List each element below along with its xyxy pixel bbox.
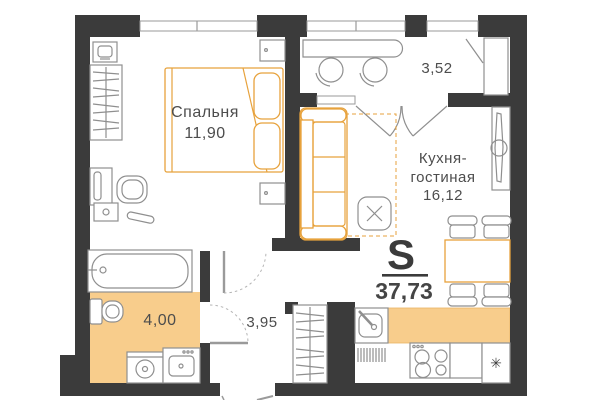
bedroom-window: [140, 21, 257, 31]
bathtub: [88, 250, 192, 292]
dining-chair: [482, 216, 511, 238]
dresser: [94, 203, 118, 221]
entry-door-leaf: [257, 396, 273, 400]
total-area-block: S 37,73: [375, 231, 433, 304]
total-area-value: 37,73: [375, 278, 433, 304]
coffee-table: [358, 197, 391, 230]
dining-chair: [448, 284, 477, 306]
desk-chair: [117, 176, 147, 203]
dining-chair: [482, 284, 511, 306]
bedroom-area: 11,90: [184, 125, 225, 142]
floorplan-canvas: ✳: [0, 0, 600, 400]
total-area-underline: [382, 274, 428, 277]
kitchen-sink: [355, 308, 388, 343]
snowflake-icon: ✳: [490, 355, 502, 371]
sofa: [300, 108, 347, 240]
kitchen-living-name-1: Кухня-: [419, 150, 467, 167]
balcony-french-doors: [356, 106, 447, 136]
balcony-cabinet-door: [466, 39, 483, 63]
dish-rack: [358, 348, 385, 362]
total-area-symbol: S: [387, 231, 415, 278]
balcony-area: 3,52: [421, 60, 452, 77]
balcony-stool: [316, 58, 343, 86]
floorplan-drawing: ✳: [0, 0, 600, 400]
small-cabinet: [93, 42, 117, 62]
bathroom-door-swing: [210, 305, 248, 343]
closet-with-hangers: [90, 65, 122, 140]
kitchen-balcony-window: [317, 96, 355, 104]
floor-item: [127, 211, 155, 223]
balcony-window-right: [427, 21, 478, 31]
bedroom-name: Спальня: [171, 104, 239, 121]
entry-door-jamb: [222, 396, 224, 400]
balcony-stool: [360, 58, 387, 86]
kitchen-living-area: 16,12: [423, 187, 463, 204]
dining-table: [445, 240, 510, 282]
tv-console: [491, 107, 510, 190]
duct-shaft: [327, 302, 355, 383]
balcony-table: [303, 40, 403, 57]
bathroom-sink: [163, 348, 200, 383]
pillow: [254, 123, 280, 169]
nightstand: [260, 40, 285, 61]
nightstand: [260, 183, 285, 204]
balcony-furniture: [303, 38, 508, 95]
toilet: [90, 299, 123, 324]
stove: [410, 343, 450, 378]
hallway-wardrobe: [293, 305, 327, 383]
kitchen-cabinet: [450, 343, 482, 378]
washing-machine: [127, 352, 163, 383]
dining-set: [445, 216, 511, 306]
bedroom-door-swing: [224, 251, 266, 293]
balcony-cabinet: [484, 38, 508, 95]
kitchen-living-name-2: гостиная: [411, 169, 476, 186]
fridge: ✳: [482, 343, 510, 383]
kitchen-counter: [388, 308, 510, 343]
hallway-area: 3,95: [246, 314, 277, 331]
bathroom-area: 4,00: [143, 312, 176, 329]
pillow: [254, 73, 280, 119]
desk: [90, 168, 112, 205]
dining-chair: [448, 216, 477, 238]
